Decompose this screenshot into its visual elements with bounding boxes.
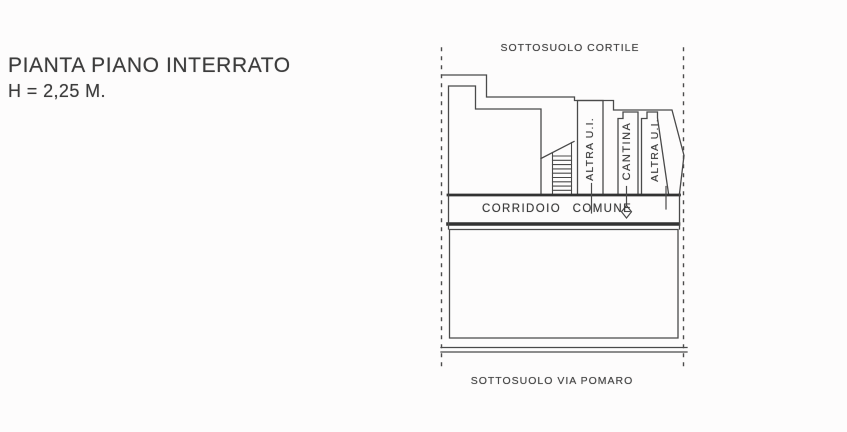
label-room-altra-ui-1: ALTRA U.I. — [584, 117, 596, 181]
label-room-cantina: CANTINA — [621, 122, 633, 181]
label-room-altra-ui-2: ALTRA U.I. — [649, 118, 661, 182]
label-sottosuolo-via-pomaro: SOTTOSUOLO VIA POMARO — [430, 375, 674, 387]
drawing-title: PIANTA PIANO INTERRATO — [8, 54, 291, 78]
drawing-height-note: H = 2,25 M. — [8, 81, 106, 102]
lower-room-outline — [450, 230, 679, 339]
left-room-outline — [449, 86, 542, 194]
label-corridoio-comune: CORRIDOIO COMUNE — [482, 203, 632, 215]
scanned-floor-plan-page: PIANTA PIANO INTERRATO H = 2,25 M. SOTTO… — [0, 0, 847, 432]
outer-wall-contour — [442, 75, 685, 194]
staircase — [541, 142, 574, 194]
label-sottosuolo-cortile: SOTTOSUOLO CORTILE — [450, 42, 690, 54]
